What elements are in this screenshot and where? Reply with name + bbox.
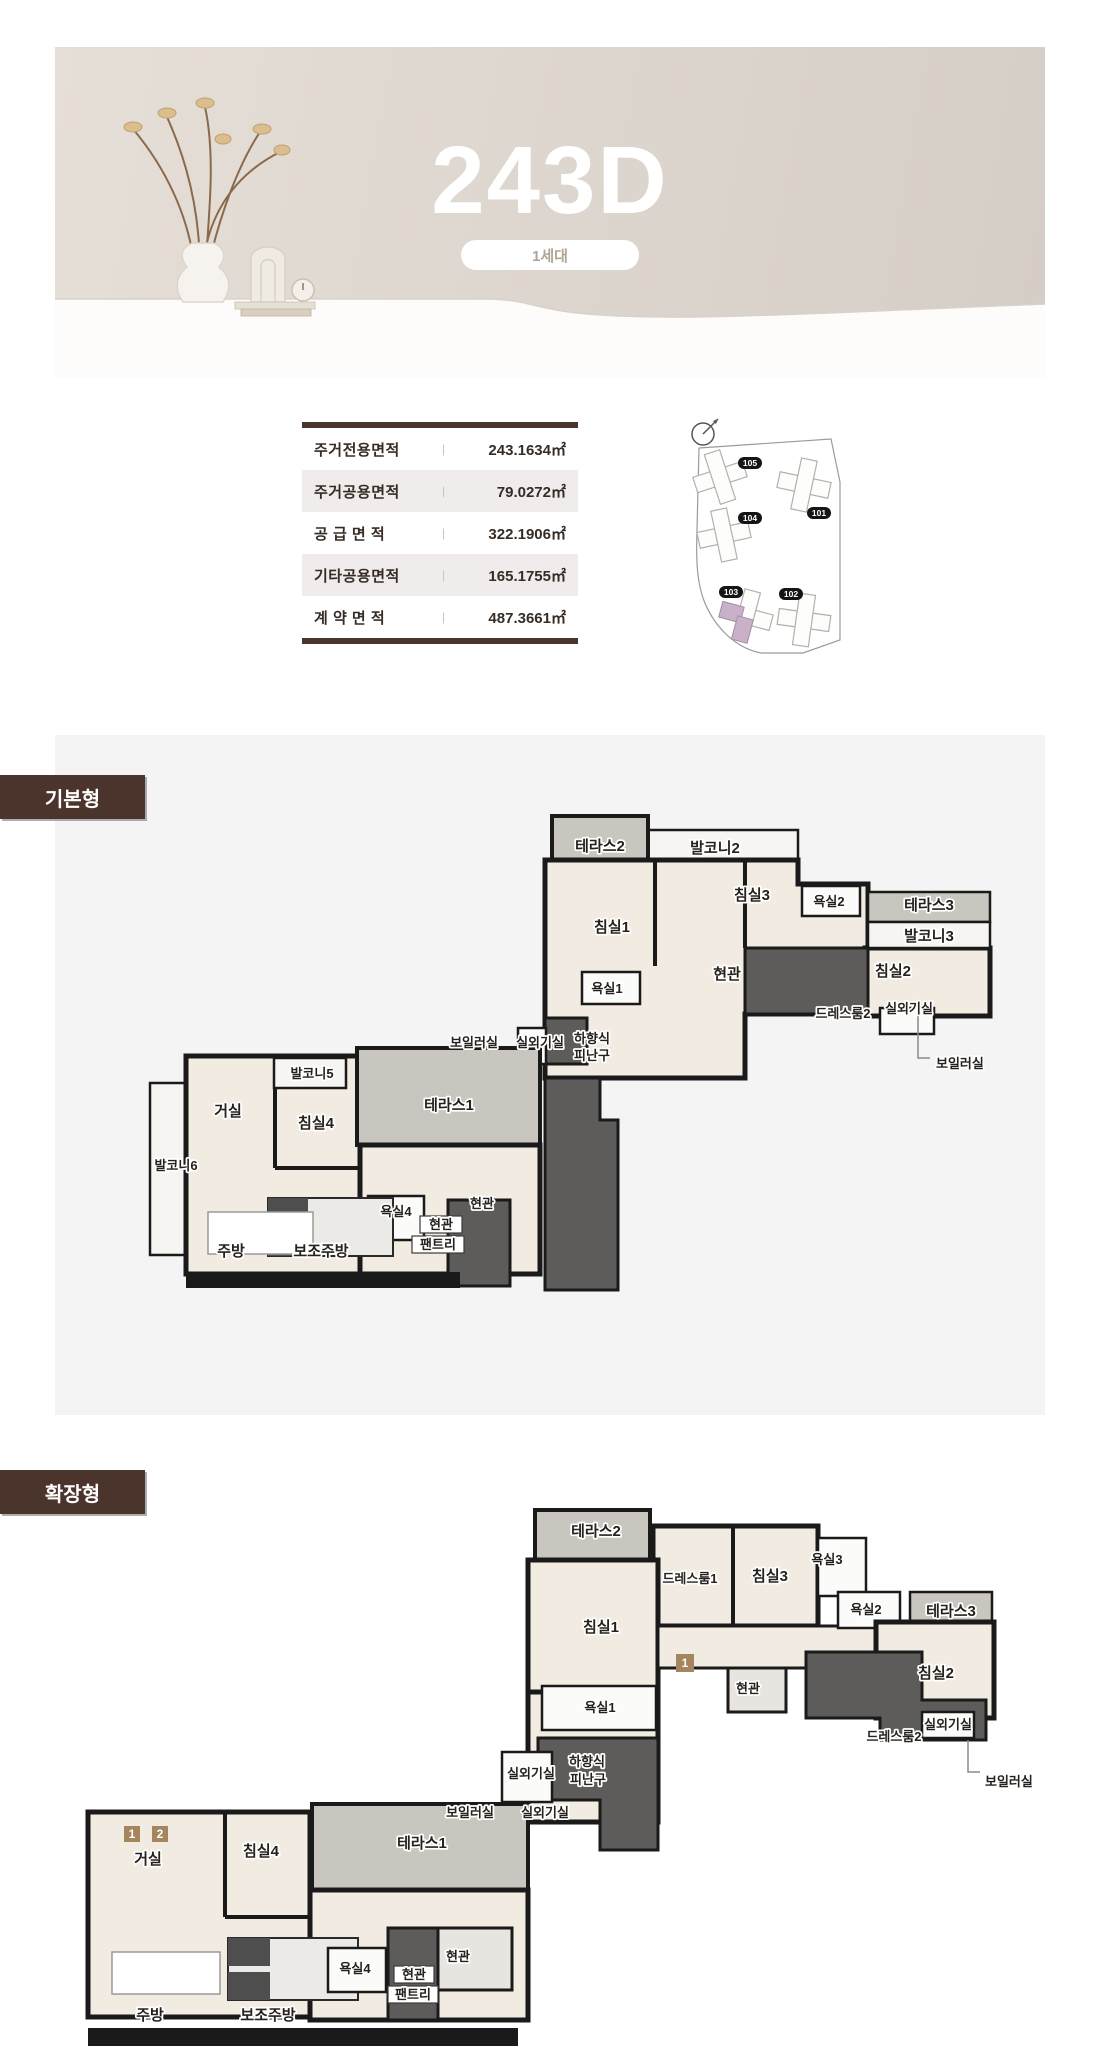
floorplan-extended: 1 1 2 테라스2 드레스룸1 침실3 욕실3 욕실2 테라스3 침실1 현관… <box>0 1430 1100 2064</box>
sculpture <box>251 247 285 302</box>
row-value: 487.3661㎡ <box>451 607 566 628</box>
building-badge: 102 <box>784 589 798 599</box>
room-label: 실외기실 <box>924 1717 972 1732</box>
table-row: 주거공용면적 | 79.0272㎡ <box>302 470 578 512</box>
header-banner: 243D 1세대 <box>55 47 1045 378</box>
room-label: 욕실3 <box>811 1552 842 1567</box>
unit-number-badge: 2 <box>157 1827 164 1841</box>
row-value: 79.0272㎡ <box>451 481 566 502</box>
building-badge: 103 <box>724 587 738 597</box>
area-table: 주거전용면적 | 243.1634㎡ 주거공용면적 | 79.0272㎡ 공 급… <box>302 422 578 644</box>
room-label: 현관 <box>470 1196 494 1211</box>
table-row: 공 급 면 적 | 322.1906㎡ <box>302 512 578 554</box>
room-label: 발코니5 <box>290 1066 333 1081</box>
room-label: 발코니3 <box>904 928 954 945</box>
row-separator: | <box>442 610 445 624</box>
table-row: 계 약 면 적 | 487.3661㎡ <box>302 596 578 638</box>
compass-icon <box>692 419 718 445</box>
room-label: 드레스룸2 <box>866 1729 921 1744</box>
page-title: 243D <box>55 133 1045 229</box>
room-label: 욕실2 <box>850 1602 881 1617</box>
row-label: 계 약 면 적 <box>314 607 436 628</box>
room-label: 침실4 <box>243 1843 280 1860</box>
room-label: 보일러실 <box>936 1056 984 1071</box>
room-label: 하향식 <box>574 1031 610 1046</box>
row-value: 165.1755㎡ <box>451 565 566 586</box>
room-label: 침실3 <box>734 887 770 904</box>
table-row: 주거전용면적 | 243.1634㎡ <box>302 428 578 470</box>
vase <box>177 243 229 302</box>
room-label: 욕실2 <box>813 894 844 909</box>
row-separator: | <box>442 568 445 582</box>
building-badge: 104 <box>743 513 757 523</box>
room-label: 실외기실 <box>521 1805 569 1820</box>
book <box>241 309 311 316</box>
room-label: 실외기실 <box>507 1766 555 1781</box>
room-label: 하향식 <box>569 1754 605 1769</box>
room-label: 팬트리 <box>420 1237 456 1252</box>
section-label-basic: 기본형 <box>0 775 145 819</box>
building-badge: 105 <box>743 458 757 468</box>
room-label: 테라스3 <box>926 1603 976 1620</box>
room-label: 욕실1 <box>584 1700 615 1715</box>
room-label: 발코니6 <box>154 1158 197 1173</box>
book <box>235 302 315 309</box>
unit-number-badge: 1 <box>129 1827 136 1841</box>
unit-count-badge: 1세대 <box>461 240 639 270</box>
row-label: 공 급 면 적 <box>314 523 436 544</box>
row-value: 243.1634㎡ <box>451 439 566 460</box>
room-label: 침실3 <box>752 1568 788 1585</box>
room-label: 현관 <box>713 966 741 983</box>
building-badge: 101 <box>812 508 826 518</box>
room-label: 욕실4 <box>380 1204 412 1219</box>
site-plan: 105 101 104 103 102 <box>683 412 905 704</box>
room-label: 주방 <box>217 1242 245 1260</box>
building-outline-101 <box>773 454 835 516</box>
row-separator: | <box>442 526 445 540</box>
room-label: 거실 <box>134 1851 162 1868</box>
room-label: 보조주방 <box>293 1242 348 1260</box>
room-label: 침실1 <box>594 919 630 936</box>
room-label: 보일러실 <box>446 1805 494 1820</box>
room-label: 드레스룸2 <box>815 1006 870 1021</box>
row-label: 주거공용면적 <box>314 481 436 502</box>
row-separator: | <box>442 442 445 456</box>
room-label: 테라스2 <box>571 1523 621 1540</box>
section-label-extended: 확장형 <box>0 1470 145 1514</box>
room-label: 테라스3 <box>904 897 954 914</box>
room-label: 테라스2 <box>575 838 625 855</box>
room-label: 거실 <box>214 1103 242 1120</box>
room-label: 보일러실 <box>985 1774 1033 1789</box>
room-label: 현관 <box>446 1949 470 1964</box>
row-value: 322.1906㎡ <box>451 523 566 544</box>
row-label: 주거전용면적 <box>314 439 436 460</box>
room-label: 침실2 <box>875 963 911 980</box>
room-label: 현관 <box>429 1217 453 1232</box>
room-label: 현관 <box>736 1681 760 1696</box>
floorplan-basic: 테라스2 발코니2 침실3 욕실2 테라스3 발코니3 침실1 욕실1 현관 침… <box>55 735 1045 1415</box>
table-row: 기타공용면적 | 165.1755㎡ <box>302 554 578 596</box>
room-label: 발코니2 <box>690 840 740 857</box>
row-separator: | <box>442 484 445 498</box>
room-label: 침실2 <box>918 1665 954 1682</box>
building-outline-105 <box>687 444 753 510</box>
room-label: 침실4 <box>298 1115 335 1132</box>
unit-number-badge: 1 <box>682 1656 689 1670</box>
room-label: 현관 <box>402 1967 426 1982</box>
room-label: 침실1 <box>583 1619 619 1636</box>
room-label: 실외기실 <box>516 1035 564 1050</box>
room-label: 실외기실 <box>885 1001 933 1016</box>
room-label: 욕실4 <box>339 1961 371 1976</box>
row-label: 기타공용면적 <box>314 565 436 586</box>
room-label: 팬트리 <box>395 1987 431 2002</box>
room-label: 보조주방 <box>240 2006 295 2024</box>
room-label: 드레스룸1 <box>662 1571 717 1586</box>
room-label: 피난구 <box>574 1048 610 1063</box>
room-label: 테라스1 <box>424 1097 474 1114</box>
room-label: 보일러실 <box>450 1035 498 1050</box>
room-label: 피난구 <box>570 1772 606 1787</box>
room-label: 주방 <box>136 2006 164 2024</box>
room-label: 테라스1 <box>397 1835 447 1852</box>
room-label: 욕실1 <box>591 981 622 996</box>
